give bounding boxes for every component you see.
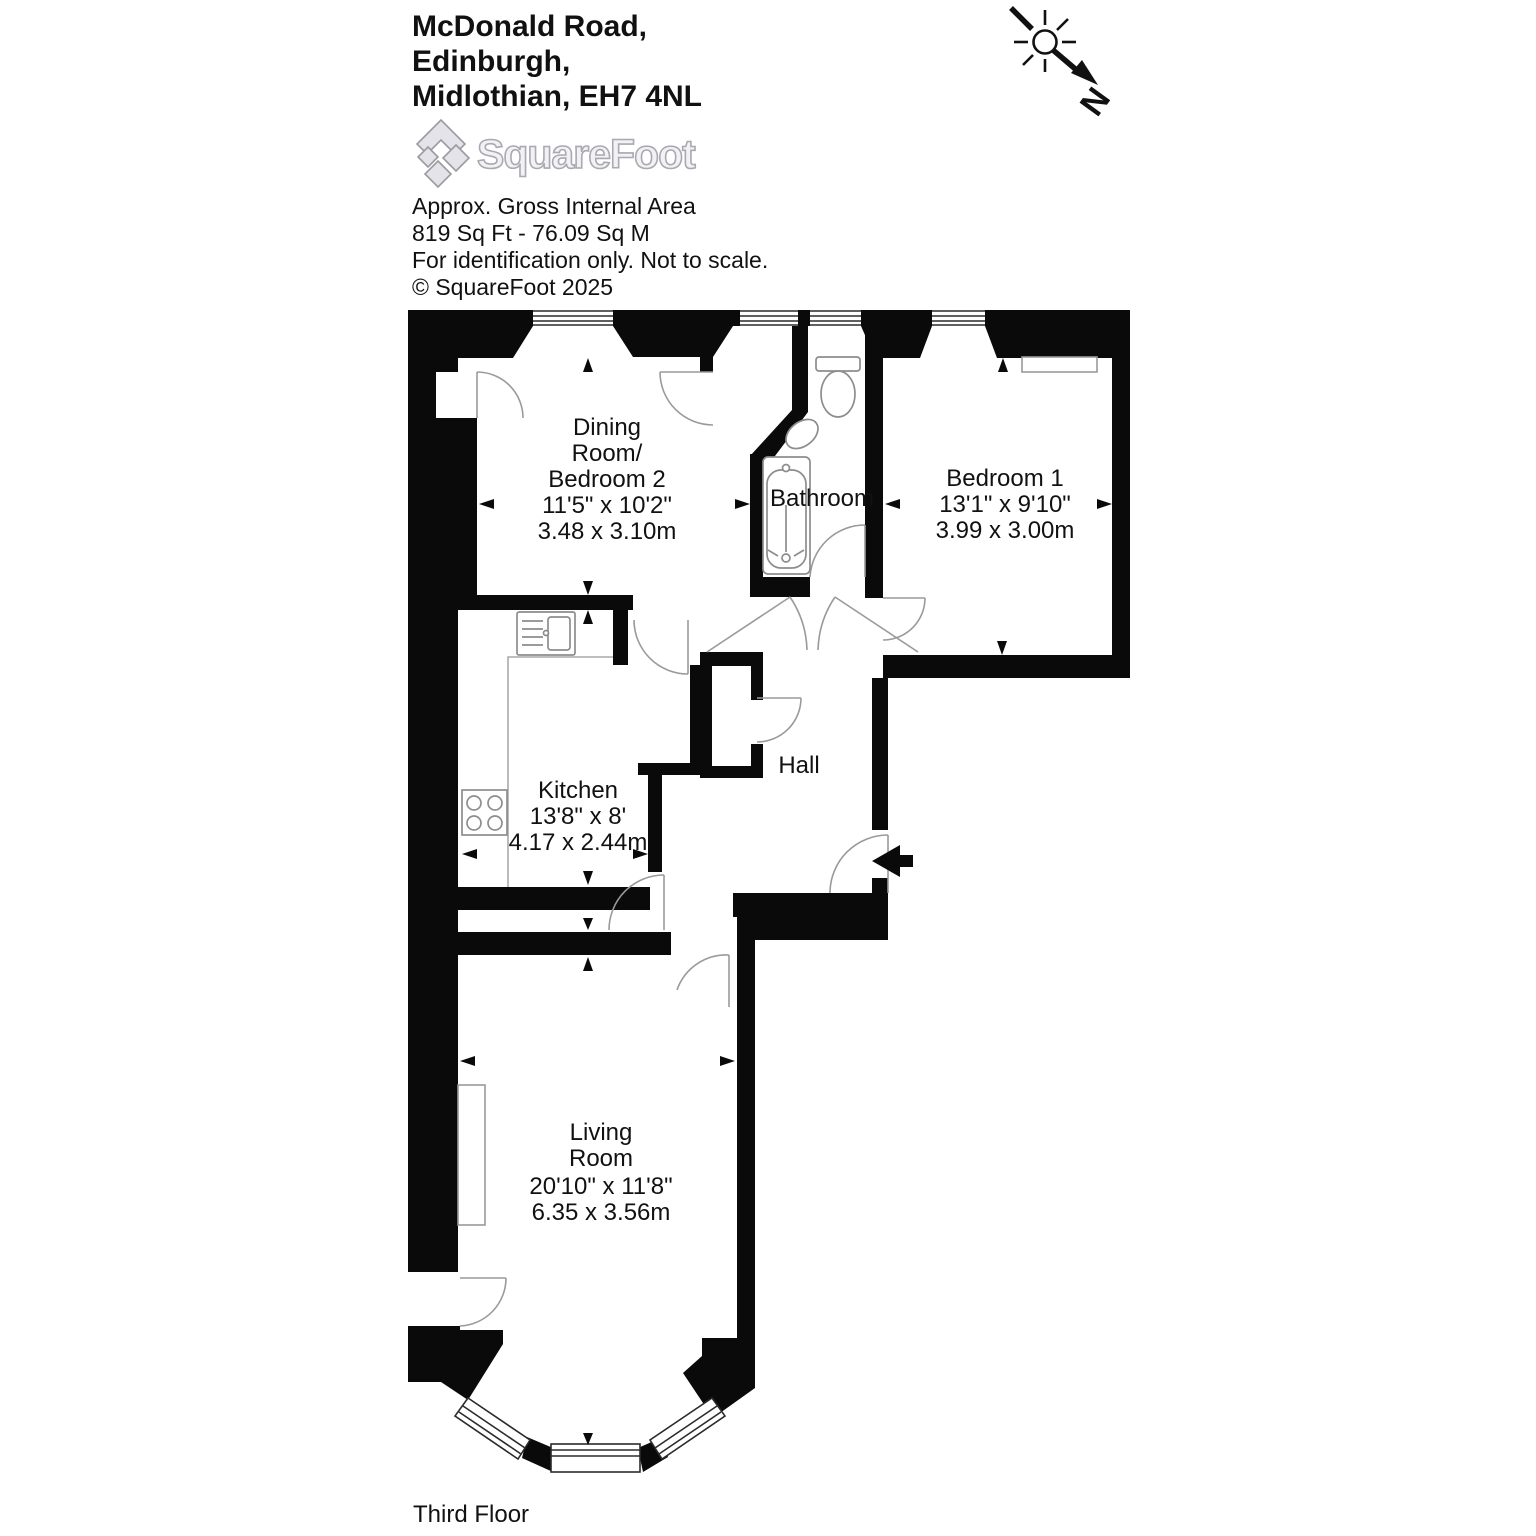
disclaimer-block: Approx. Gross Internal Area 819 Sq Ft - … — [412, 193, 768, 300]
disclaimer-text: For identification only. Not to scale. — [412, 247, 768, 273]
label-bedroom1: Bedroom 1 13'1" x 9'10" 3.99 x 3.00m — [936, 465, 1075, 544]
bedroom1-imperial: 13'1" x 9'10" — [939, 491, 1071, 518]
door-cupboard — [757, 698, 801, 742]
dining-name-3: Bedroom 2 — [548, 466, 665, 493]
label-bathroom: Bathroom — [770, 485, 874, 512]
hob-icon — [462, 790, 507, 835]
toilet-icon — [816, 357, 860, 417]
kitchen-sink-icon — [517, 612, 575, 655]
door-bathroom — [810, 525, 865, 577]
door-living-southwest — [460, 1278, 506, 1326]
window-dining — [533, 310, 613, 326]
window-bedroom1 — [932, 310, 985, 326]
label-kitchen: Kitchen 13'8" x 8' 4.17 x 2.44m — [509, 777, 648, 856]
dining-metric: 3.48 x 3.10m — [538, 518, 677, 545]
copyright-text: © SquareFoot 2025 — [412, 274, 613, 300]
bedroom-wardrobe — [1022, 357, 1097, 372]
living-name-1: Living — [570, 1119, 633, 1146]
bathtub-icon — [763, 457, 810, 574]
kitchen-metric: 4.17 x 2.44m — [509, 829, 648, 856]
living-name-2: Room — [569, 1145, 633, 1172]
bedroom1-name: Bedroom 1 — [946, 465, 1063, 492]
area-values: 819 Sq Ft - 76.09 Sq M — [412, 220, 650, 246]
dining-name-1: Dining — [573, 414, 641, 441]
door-dining-northeast — [660, 372, 713, 425]
label-dining-room: Dining Room/ Bedroom 2 11'5" x 10'2" 3.4… — [538, 414, 677, 545]
door-dining-west — [477, 372, 523, 418]
squarefoot-logo-icon — [417, 120, 469, 187]
address-block: McDonald Road, Edinburgh, Midlothian, EH… — [412, 10, 702, 113]
bedroom1-metric: 3.99 x 3.00m — [936, 517, 1075, 544]
window-bathroom-left — [740, 310, 798, 326]
door-living — [677, 955, 729, 1007]
door-vestibule — [634, 620, 688, 674]
entrance-arrow-icon — [872, 845, 913, 877]
kitchen-imperial: 13'8" x 8' — [530, 803, 626, 830]
address-line-2: Edinburgh, — [412, 45, 570, 78]
floor-label: Third Floor — [413, 1501, 529, 1528]
area-title: Approx. Gross Internal Area — [412, 193, 696, 219]
living-metric: 6.35 x 3.56m — [532, 1199, 671, 1226]
label-hall: Hall — [778, 752, 819, 779]
living-room-shelf — [458, 1085, 485, 1225]
address-line-1: McDonald Road, — [412, 10, 647, 43]
kitchen-name: Kitchen — [538, 777, 618, 804]
living-imperial: 20'10" x 11'8" — [529, 1173, 672, 1200]
squarefoot-logo-text: SquareFoot — [477, 131, 696, 177]
dining-imperial: 11'5" x 10'2" — [542, 492, 672, 519]
label-living-room: Living Room 20'10" x 11'8" 6.35 x 3.56m — [529, 1119, 672, 1226]
window-bathroom-right — [810, 310, 861, 326]
north-arrow-icon: N — [1011, 8, 1117, 122]
floor-plan-canvas: McDonald Road, Edinburgh, Midlothian, EH… — [0, 0, 1536, 1536]
address-line-3: Midlothian, EH7 4NL — [412, 80, 702, 113]
north-label: N — [1072, 80, 1117, 122]
dining-name-2: Room/ — [572, 440, 643, 467]
double-doors-hall — [707, 597, 918, 652]
squarefoot-logo: SquareFoot — [417, 120, 696, 187]
floorplan-page: McDonald Road, Edinburgh, Midlothian, EH… — [0, 0, 1536, 1536]
